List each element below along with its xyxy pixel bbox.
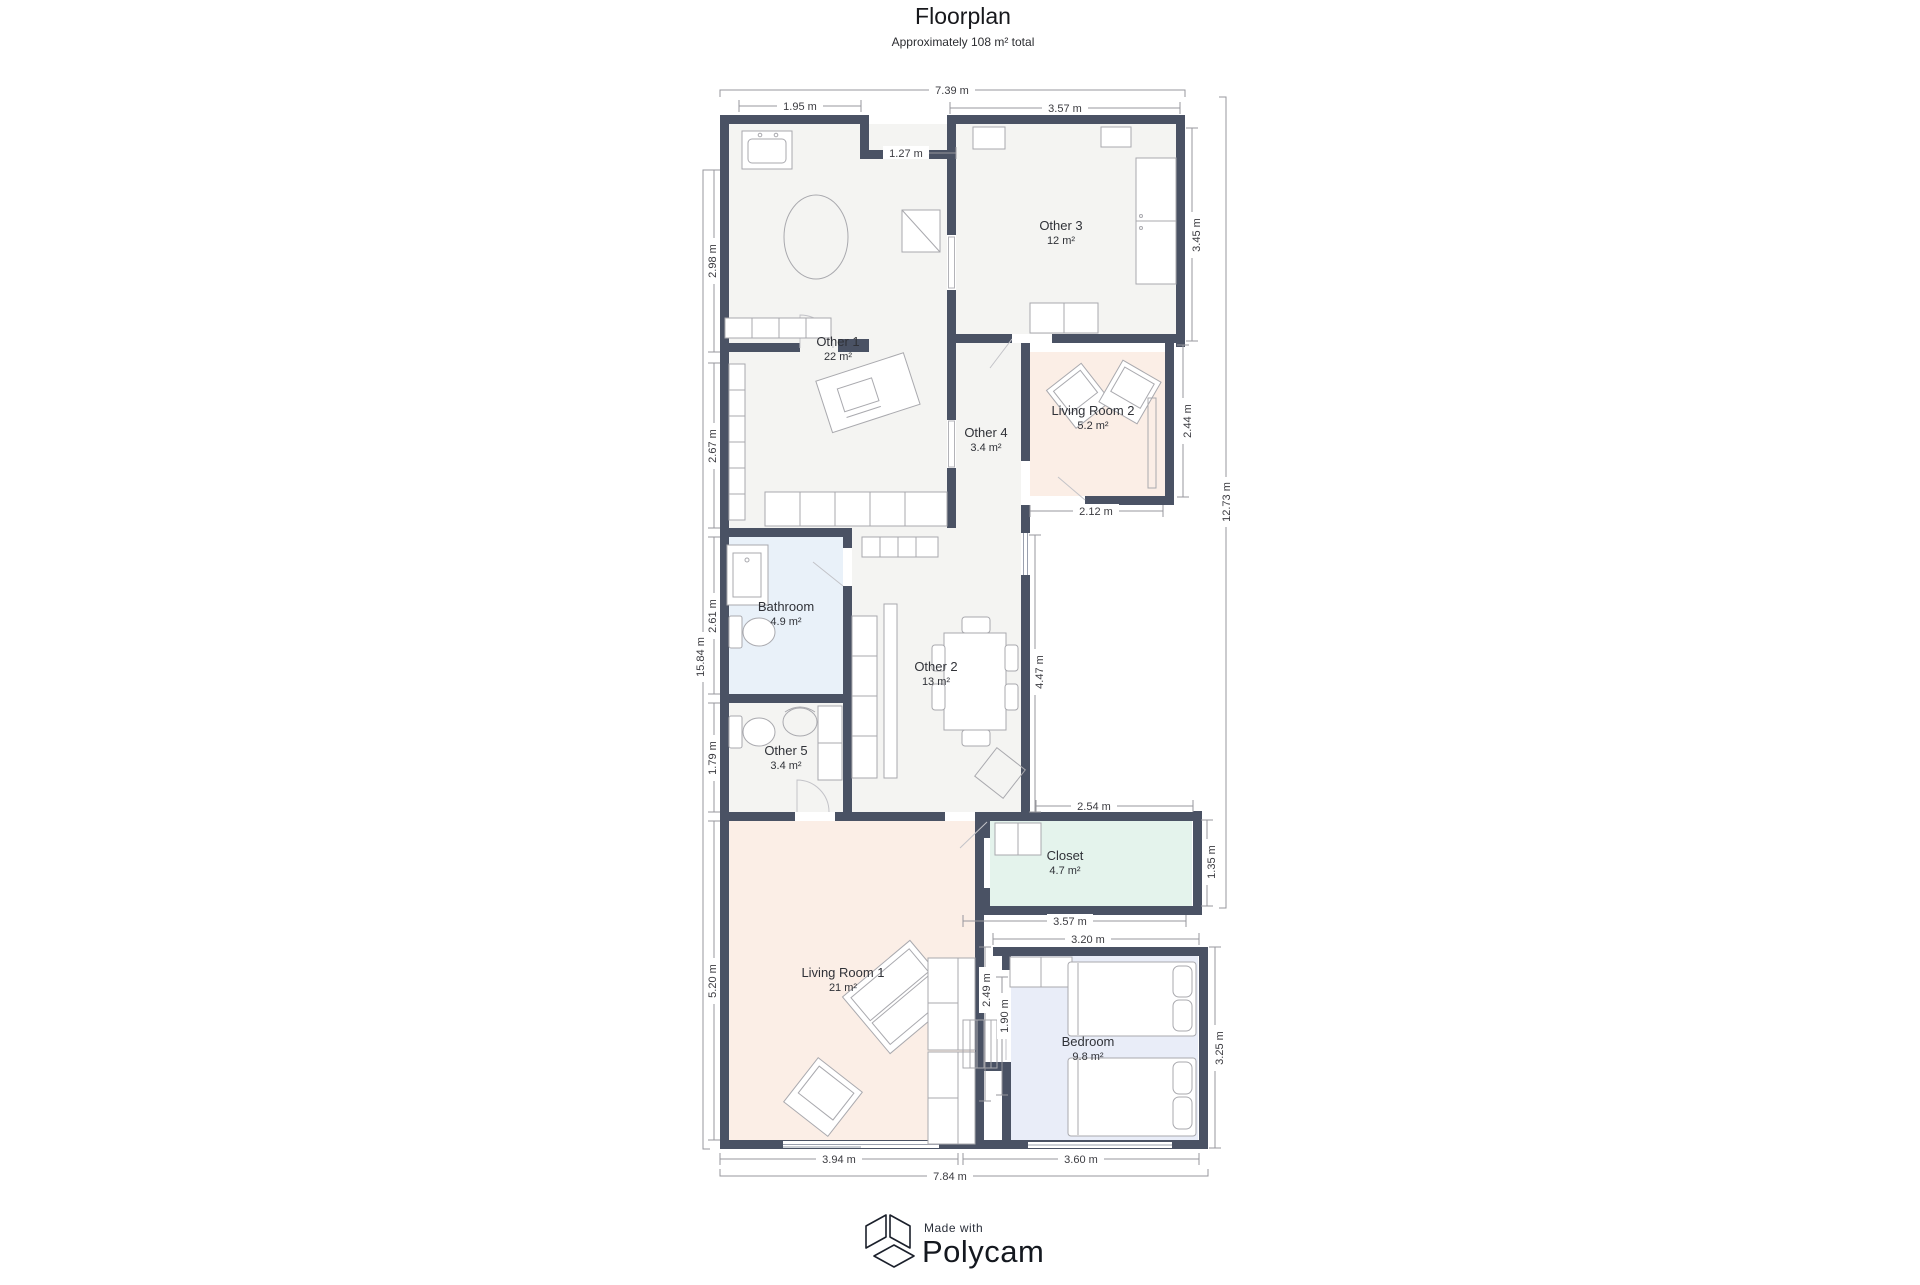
svg-text:3.25 m: 3.25 m: [1214, 1031, 1226, 1065]
dim-bottom-total: 7.84 m: [933, 1171, 967, 1183]
bed-icon: [1068, 1058, 1196, 1136]
svg-text:2.44 m: 2.44 m: [1182, 404, 1194, 438]
kitchen-island-icon: [884, 604, 897, 778]
dim-left-5: 5.20 m: [705, 958, 719, 1004]
dim-mid-living2: 2.12 m: [1079, 506, 1113, 518]
svg-text:2.98 m: 2.98 m: [707, 244, 719, 278]
brand-label: Polycam: [922, 1234, 1044, 1269]
dim-closet-top: 2.54 m: [1077, 801, 1111, 813]
room-label-other3: Other 3: [1039, 218, 1082, 233]
room-area-closet: 4.7 m²: [1049, 865, 1081, 877]
table-icon: [1101, 127, 1131, 147]
room-label-closet: Closet: [1047, 848, 1084, 863]
dim-right-other3: 3.45 m: [1189, 212, 1203, 258]
toilet-icon: [729, 616, 775, 648]
room-area-living2: 5.2 m²: [1077, 420, 1109, 432]
room-area-bedroom: 9.8 m²: [1072, 1051, 1104, 1063]
dim-top-right: 3.57 m: [1048, 103, 1082, 115]
dim-bottom-right: 3.60 m: [1064, 1154, 1098, 1166]
dim-bedroom-left-2: 1.90 m: [997, 993, 1011, 1039]
door-leaf-icon: [949, 421, 955, 467]
dim-right-bedroom: 3.25 m: [1212, 1025, 1226, 1071]
floorplan-page: Floorplan Approximately 108 m² total: [0, 0, 1920, 1280]
cabinet-icon: [818, 706, 842, 780]
svg-text:1.35 m: 1.35 m: [1206, 845, 1218, 879]
dim-bottom-left: 3.94 m: [822, 1154, 856, 1166]
wardrobe-icon: [1010, 957, 1072, 987]
bookshelf-icon: [729, 364, 745, 520]
page-subtitle: Approximately 108 m² total: [892, 35, 1035, 49]
dim-left-4: 1.79 m: [705, 735, 719, 781]
svg-text:2.61 m: 2.61 m: [707, 599, 719, 633]
page-title: Floorplan: [915, 3, 1011, 29]
dim-bedroom-left-1: 2.49 m: [979, 967, 993, 1013]
footer-brand: Made with Polycam: [866, 1215, 1044, 1269]
room-label-bathroom: Bathroom: [758, 599, 814, 614]
counter-icon: [765, 492, 947, 526]
window-icon: [1024, 533, 1028, 575]
bed-icon: [1068, 962, 1196, 1036]
svg-text:15.84 m: 15.84 m: [695, 637, 707, 677]
kitchen-counter-icon: [862, 537, 938, 557]
floorplan-canvas: Floorplan Approximately 108 m² total: [0, 0, 1920, 1280]
room-label-living1: Living Room 1: [801, 965, 884, 980]
svg-text:1.90 m: 1.90 m: [999, 999, 1011, 1033]
wardrobe-icon: [1136, 158, 1176, 284]
dim-right-living2: 2.44 m: [1180, 398, 1194, 444]
room-label-living2: Living Room 2: [1051, 403, 1134, 418]
dim-left-2: 2.67 m: [705, 423, 719, 469]
room-label-other5: Other 5: [764, 743, 807, 758]
sink-icon: [742, 131, 792, 169]
room-area-other4: 3.4 m²: [970, 442, 1002, 454]
dim-bedroom-top: 3.20 m: [1071, 934, 1105, 946]
polycam-logo-icon: [866, 1215, 914, 1267]
svg-text:4.47 m: 4.47 m: [1034, 655, 1046, 689]
dim-right-closet: 1.35 m: [1204, 839, 1218, 885]
dim-closet-bottom: 3.57 m: [1053, 916, 1087, 928]
room-area-other5: 3.4 m²: [770, 760, 802, 772]
svg-text:12.73 m: 12.73 m: [1221, 482, 1233, 522]
table-icon: [973, 127, 1005, 149]
cabinet-icon: [902, 210, 940, 252]
vanity-icon: [727, 545, 768, 605]
dim-left-1: 2.98 m: [705, 238, 719, 284]
door-leaf-icon: [949, 237, 955, 288]
made-with-label: Made with: [924, 1221, 983, 1235]
tall-cabinet-icon: [852, 616, 877, 778]
room-label-other4: Other 4: [964, 425, 1007, 440]
svg-text:2.49 m: 2.49 m: [981, 973, 993, 1007]
room-area-bathroom: 4.9 m²: [770, 616, 802, 628]
svg-text:1.79 m: 1.79 m: [707, 741, 719, 775]
room-area-other2: 13 m²: [922, 676, 950, 688]
window-icon: [783, 1141, 939, 1148]
storage-box-icon: [995, 823, 1041, 855]
cabinet-icon: [725, 318, 831, 338]
window-icon: [1028, 1142, 1172, 1148]
dim-right-total: 12.73 m: [1219, 477, 1233, 527]
dim-left-total: 15.84 m: [693, 632, 707, 682]
svg-text:5.20 m: 5.20 m: [707, 964, 719, 998]
svg-text:2.67 m: 2.67 m: [707, 429, 719, 463]
room-label-bedroom: Bedroom: [1062, 1034, 1115, 1049]
svg-text:3.45 m: 3.45 m: [1191, 218, 1203, 252]
sideboard-icon: [1030, 303, 1098, 333]
dim-top-door: 1.27 m: [889, 148, 923, 160]
dim-top-total: 7.39 m: [935, 85, 969, 97]
dim-mid-other2: 4.47 m: [1032, 649, 1046, 695]
room-area-living1: 21 m²: [829, 982, 857, 994]
dim-left-3: 2.61 m: [705, 593, 719, 639]
dim-top-left: 1.95 m: [783, 101, 817, 113]
room-label-other1: Other 1: [816, 334, 859, 349]
room-area-other1: 22 m²: [824, 351, 852, 363]
room-label-other2: Other 2: [914, 659, 957, 674]
room-area-other3: 12 m²: [1047, 235, 1075, 247]
